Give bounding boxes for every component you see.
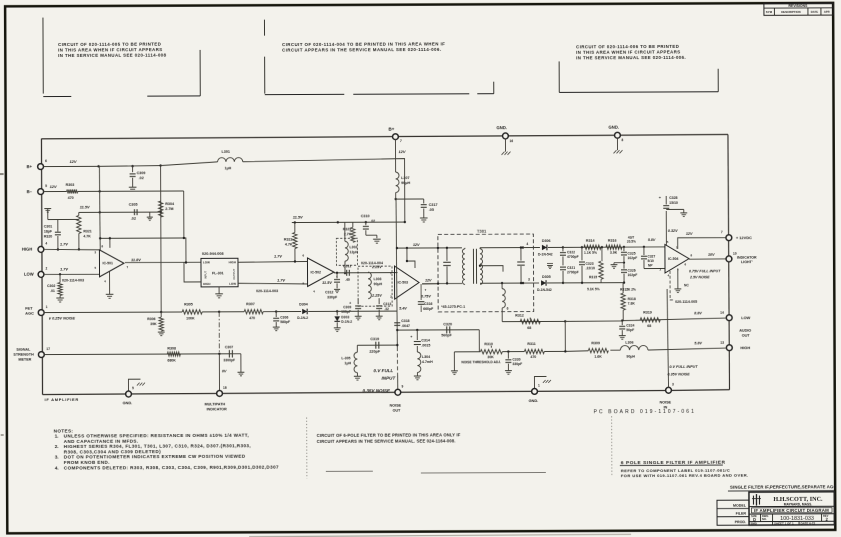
svg-text:CIRCUIT OF 6-POLE FILTER TO: CIRCUIT OF 6-POLE FILTER TO BE PRINTED I… [317, 432, 461, 438]
svg-text:12V: 12V [70, 159, 77, 164]
svg-text:NOISE THRESHOLD ADJ.: NOISE THRESHOLD ADJ. [461, 360, 501, 364]
svg-text:R323: R323 [343, 227, 351, 231]
svg-text:MODEL: MODEL [733, 504, 747, 508]
svg-text:9: 9 [401, 385, 403, 389]
svg-text:INDICATOR: INDICATOR [737, 255, 757, 259]
svg-text:50pF: 50pF [626, 328, 634, 332]
svg-text:2: 2 [45, 267, 47, 271]
svg-text:330pF: 330pF [327, 295, 337, 299]
svg-text:.40: .40 [345, 278, 350, 282]
svg-text:1: 1 [46, 305, 48, 309]
svg-text:C322: C322 [567, 250, 575, 254]
svg-text:C323: C323 [585, 262, 593, 266]
svg-text:1.6K: 1.6K [594, 355, 602, 359]
svg-text:R306: R306 [147, 317, 155, 321]
svg-text:C325: C325 [627, 252, 635, 256]
svg-text:4: 4 [45, 242, 47, 246]
svg-text:IN THE SERVICE MANUAL SEE 020-: IN THE SERVICE MANUAL SEE 020-1114-006. [576, 55, 686, 60]
svg-text:3: 3 [672, 382, 674, 386]
svg-text:IF AMPLIFIER CIRCUIT DIAGRAM: IF AMPLIFIER CIRCUIT DIAGRAM [754, 508, 829, 513]
svg-text:.02: .02 [131, 217, 136, 221]
svg-text:2.: 2. [55, 444, 59, 449]
svg-text:2700pF: 2700pF [567, 270, 579, 274]
svg-text:LOW: LOW [24, 272, 34, 277]
svg-text:IN THE SERVICE MANUAL SEE 020-: IN THE SERVICE MANUAL SEE 020-1114-008 [58, 53, 167, 58]
svg-text:330pF: 330pF [512, 362, 522, 366]
svg-text:C324: C324 [626, 324, 634, 328]
svg-text:.02: .02 [370, 219, 375, 223]
svg-text:L-305: L-305 [341, 356, 350, 360]
svg-text:3.9K: 3.9K [610, 251, 618, 255]
svg-text:16: 16 [509, 139, 513, 143]
svg-text:D-1N-542: D-1N-542 [538, 252, 553, 256]
svg-text:580pF: 580pF [280, 320, 290, 324]
svg-text:SIGNAL: SIGNAL [16, 348, 31, 352]
svg-text:0.35V NOISE: 0.35V NOISE [667, 372, 690, 376]
svg-text:1.7V: 1.7V [274, 254, 282, 259]
svg-text:.02: .02 [139, 176, 144, 180]
svg-text:FL-301: FL-301 [212, 271, 224, 275]
svg-text:.0047: .0047 [401, 324, 410, 328]
svg-text:3: 3 [528, 278, 530, 282]
svg-text:DESCRIPTION: DESCRIPTION [781, 10, 800, 14]
svg-text:1.7V: 1.7V [60, 241, 68, 246]
svg-text:5: 5 [667, 240, 669, 244]
svg-text:4: 4 [526, 242, 528, 246]
svg-text:C305: C305 [129, 203, 138, 207]
svg-text:13: 13 [720, 341, 724, 345]
svg-text:C319: C319 [370, 337, 379, 341]
svg-text:C310: C310 [361, 214, 370, 218]
svg-text:1.7V: 1.7V [60, 266, 68, 271]
svg-text:6: 6 [507, 307, 509, 311]
svg-text:C316: C316 [424, 302, 432, 306]
svg-text:FILER: FILER [736, 512, 747, 516]
svg-text:1.1K 5%: 1.1K 5% [584, 251, 597, 255]
svg-text:R321: R321 [83, 229, 91, 233]
svg-text:100μF: 100μF [341, 310, 351, 314]
svg-text:18pF: 18pF [44, 230, 52, 234]
svg-text:5.8V: 5.8V [694, 341, 702, 345]
svg-text:7: 7 [721, 230, 723, 234]
svg-text:C312: C312 [325, 290, 333, 294]
svg-text:NOISE: NOISE [660, 400, 672, 404]
svg-text:4.7K: 4.7K [83, 234, 91, 238]
svg-text:11.8V: 11.8V [131, 257, 141, 262]
svg-text:LOW: LOW [203, 260, 210, 264]
svg-text:L304: L304 [422, 355, 430, 359]
svg-text:PROD.: PROD. [735, 520, 746, 524]
svg-text:15/10: 15/10 [669, 201, 678, 205]
svg-text:HIGH: HIGH [203, 282, 210, 286]
svg-text:*45-1275-PC-1: *45-1275-PC-1 [441, 305, 465, 309]
svg-text:MULTIPATH: MULTIPATH [205, 402, 226, 406]
svg-text:SYM: SYM [766, 10, 773, 14]
svg-text:0.V FULL: 0.V FULL [373, 368, 393, 373]
svg-text:16: 16 [223, 386, 227, 390]
svg-text:30K: 30K [487, 355, 494, 359]
svg-text:IC-503: IC-503 [398, 281, 409, 285]
svg-text:HIGH: HIGH [740, 345, 750, 350]
svg-text:D-1N-2: D-1N-2 [341, 320, 352, 324]
svg-text:R303: R303 [66, 183, 75, 187]
svg-text:90μH: 90μH [401, 181, 410, 185]
svg-text:IF AMPLIFIER: IF AMPLIFIER [45, 397, 79, 402]
svg-text:D304: D304 [299, 302, 308, 306]
svg-text:R314: R314 [586, 239, 595, 243]
svg-text:GND.: GND. [529, 398, 539, 403]
svg-text:C321: C321 [567, 266, 575, 270]
svg-text:.0015: .0015 [421, 343, 430, 347]
svg-text:12V: 12V [50, 184, 57, 189]
svg-text:1.7V: 1.7V [277, 278, 285, 283]
svg-text:4700pF: 4700pF [567, 255, 579, 259]
svg-text:.05: .05 [429, 208, 434, 212]
svg-text:470: 470 [530, 355, 536, 359]
svg-text:4.7mH: 4.7mH [422, 360, 433, 364]
svg-text:OUT: OUT [393, 409, 402, 413]
svg-text:5.1K 5%: 5.1K 5% [587, 287, 600, 291]
svg-text:8: 8 [621, 138, 623, 142]
svg-text:C301: C301 [44, 225, 52, 229]
svg-text:.01: .01 [50, 289, 55, 293]
svg-text:020-1114-003: 020-1114-003 [62, 278, 84, 282]
svg-text:LIGHT': LIGHT' [741, 260, 753, 264]
svg-text:020-1114-005: 020-1114-005 [675, 300, 697, 304]
svg-text:R310: R310 [484, 342, 493, 346]
svg-text:D305: D305 [542, 275, 551, 279]
svg-text:20.5%: 20.5% [627, 240, 636, 244]
svg-text:GND.: GND. [496, 125, 507, 130]
svg-text:12μH: 12μH [349, 250, 358, 254]
svg-text:2.7K: 2.7K [344, 232, 352, 236]
svg-text:C330: C330 [512, 358, 520, 362]
svg-text:6: 6 [45, 159, 47, 163]
svg-text:7.8K: 7.8K [628, 302, 636, 306]
svg-text:C326: C326 [628, 269, 636, 273]
svg-text:C309: C309 [137, 171, 146, 175]
svg-text:B+: B+ [27, 164, 33, 169]
svg-text:METER: METER [18, 358, 31, 362]
svg-text:INDICATOR: INDICATOR [207, 407, 228, 411]
svg-text:NC: NC [684, 283, 689, 287]
svg-text:GND.: GND. [123, 400, 133, 405]
svg-text:0.32V: 0.32V [668, 229, 678, 233]
svg-text:AUDIO: AUDIO [739, 329, 751, 333]
svg-text:1μH: 1μH [344, 361, 351, 365]
svg-text:SMD: SMD [751, 521, 757, 525]
svg-text:90μH: 90μH [626, 355, 635, 359]
svg-text:1μH: 1μH [225, 166, 232, 170]
svg-text:5.4V: 5.4V [399, 307, 407, 311]
svg-text:C317: C317 [429, 203, 438, 207]
svg-text:020-1114-003: 020-1114-003 [256, 289, 278, 293]
svg-text:102pF: 102pF [627, 256, 637, 260]
svg-text:D-1N-2: D-1N-2 [297, 316, 308, 320]
svg-text:REVISIONS: REVISIONS [788, 4, 808, 8]
svg-text:R304: R304 [165, 202, 175, 206]
svg-text:68: 68 [647, 324, 651, 328]
svg-text:T301: T301 [477, 229, 487, 234]
svg-text:3.: 3. [55, 455, 59, 460]
svg-text:C307: C307 [225, 345, 233, 349]
svg-text:AGC: AGC [25, 311, 34, 316]
svg-text:C306: C306 [280, 316, 288, 320]
svg-text:12V: 12V [425, 278, 432, 282]
svg-text:R308: R308 [167, 347, 176, 351]
svg-text:CIRCUIT APPEARS IN THE SER: CIRCUIT APPEARS IN THE SERVICE MANUAL. S… [317, 438, 456, 444]
svg-text:LOW: LOW [741, 315, 750, 320]
svg-text:CIRCUIT APPEARS IN THE SERVICE: CIRCUIT APPEARS IN THE SERVICE MANUAL SE… [282, 47, 441, 53]
svg-text:C318: C318 [401, 319, 409, 323]
svg-text:470: 470 [249, 316, 255, 320]
svg-text:R315: R315 [589, 275, 597, 279]
svg-text:1.: 1. [55, 434, 59, 439]
svg-text:NO.: NO. [762, 517, 767, 521]
svg-text:2.25V: 2.25V [371, 294, 382, 298]
svg-text:L302: L302 [349, 245, 357, 249]
svg-text:C314: C314 [421, 338, 430, 342]
svg-text:102pF: 102pF [628, 273, 638, 277]
svg-text:2.25V: 2.25V [371, 265, 382, 269]
svg-text:L301: L301 [222, 150, 230, 154]
svg-text:GND.: GND. [608, 125, 619, 130]
svg-text:5: 5 [45, 184, 47, 188]
svg-text:11.5V: 11.5V [80, 204, 90, 209]
svg-text:560pF: 560pF [441, 333, 452, 337]
svg-text:C328: C328 [669, 196, 677, 200]
svg-text:C302: C302 [47, 284, 55, 288]
svg-text:0.V FULL INPUT: 0.V FULL INPUT [669, 365, 698, 369]
svg-text:B+: B+ [388, 127, 394, 132]
svg-text:0V: 0V [222, 369, 227, 373]
svg-text:470: 470 [68, 196, 74, 200]
svg-text:C309: C309 [343, 305, 351, 309]
svg-text:1K 2%: 1K 2% [626, 288, 636, 292]
svg-text:APP.: APP. [824, 10, 830, 14]
svg-text:2.7M: 2.7M [165, 207, 173, 211]
svg-text:DOT ON POTENTIOMETER INDICATES: DOT ON POTENTIOMETER INDICATES EXTREME C… [64, 454, 246, 460]
svg-text:0.35V NOISE: 0.35V NOISE [363, 388, 391, 393]
svg-text:HIGH: HIGH [229, 260, 236, 264]
svg-text:.22/10: .22/10 [585, 266, 595, 270]
svg-text:MAYNARD, MASS.: MAYNARD, MASS. [784, 502, 813, 506]
svg-text:COMPONENTS DELETED: R303, R308: COMPONENTS DELETED: R303, R308, C303, C3… [64, 464, 279, 470]
svg-text:NOISE: NOISE [390, 404, 402, 408]
svg-text:R311: R311 [527, 342, 535, 346]
svg-text:R307: R307 [246, 302, 255, 306]
svg-text:OUTPUT: OUTPUT [232, 268, 236, 279]
svg-text:14: 14 [720, 311, 724, 315]
svg-text:100K: 100K [186, 316, 195, 320]
svg-text:1: 1 [538, 383, 540, 387]
svg-text:4.7K: 4.7K [285, 243, 293, 247]
svg-text:5/10: 5/10 [647, 259, 654, 263]
svg-text:UNLESS OTHERWISE SPECIFIED:: UNLESS OTHERWISE SPECIFIED: RESISTANCE I… [64, 433, 249, 439]
svg-text:7: 7 [400, 139, 402, 143]
svg-text:L307: L307 [401, 176, 409, 180]
svg-text:R320: R320 [44, 235, 52, 239]
svg-text:11.5V: 11.5V [322, 280, 332, 285]
svg-text:5: 5 [132, 386, 134, 390]
svg-text:R309: R309 [591, 341, 600, 345]
svg-text:020-944-008: 020-944-008 [202, 252, 224, 256]
svg-text:R312: R312 [515, 314, 524, 318]
svg-text:IC-502: IC-502 [311, 270, 322, 274]
svg-text:D-1N-542: D-1N-542 [537, 288, 552, 292]
svg-text:C311: C311 [343, 264, 351, 268]
svg-text:PC BOARD 019-1107-061: PC BOARD 019-1107-061 [594, 409, 696, 415]
svg-text:LOW: LOW [229, 282, 236, 286]
svg-text:C327: C327 [647, 255, 655, 259]
svg-text:4.: 4. [55, 465, 59, 470]
svg-text:0.75V FULL INPUT: 0.75V FULL INPUT [689, 269, 721, 273]
svg-text:660pF: 660pF [423, 307, 433, 311]
svg-text:8.8V: 8.8V [694, 311, 702, 315]
svg-text:L306: L306 [625, 341, 633, 345]
svg-text:SINGLE FILTER IF,PERFECTURE,SE: SINGLE FILTER IF,PERFECTURE,SEPARATE AGC [730, 484, 838, 489]
svg-text:∨ 0.25V NOISE: ∨ 0.25V NOISE [48, 316, 75, 320]
svg-text:B−: B− [27, 189, 33, 194]
svg-text:0.75V: 0.75V [421, 294, 431, 298]
svg-text:FOR USE WITH 019-1107-061: FOR USE WITH 019-1107-061 REV.4 BOARD AN… [621, 472, 749, 478]
svg-text:680K: 680K [167, 359, 176, 363]
svg-text:STRENGTH: STRENGTH [13, 353, 34, 357]
svg-text:R316: R316 [608, 239, 617, 243]
svg-text:2.5V NOISE: 2.5V NOISE [689, 275, 710, 279]
svg-text:5.8V: 5.8V [648, 238, 656, 242]
svg-text:12V: 12V [686, 232, 693, 236]
svg-text:220pF: 220pF [369, 350, 380, 354]
svg-text:12V: 12V [399, 149, 406, 154]
svg-text:+ 12VDC: + 12VDC [736, 235, 752, 240]
svg-text:39K: 39K [150, 322, 157, 326]
svg-text:SHEET 1 OF 1: SHEET 1 OF 1 [774, 521, 794, 525]
svg-text:D306: D306 [542, 239, 551, 243]
svg-text:INPUT: INPUT [204, 270, 208, 278]
svg-text:68: 68 [527, 326, 531, 330]
svg-text:3300pF: 3300pF [223, 358, 235, 362]
svg-text:D303: D303 [341, 315, 349, 319]
svg-text:90μH: 90μH [374, 282, 383, 286]
svg-text:OUT: OUT [742, 334, 751, 338]
svg-text:DATE 6-72: DATE 6-72 [801, 521, 816, 525]
svg-text:INPUT: INPUT [381, 376, 396, 381]
svg-text:L303: L303 [374, 277, 382, 281]
svg-text:R318: R318 [628, 297, 636, 301]
svg-text:IC-504: IC-504 [668, 257, 679, 261]
svg-text:12V: 12V [413, 243, 420, 247]
svg-text:HIGH: HIGH [22, 247, 32, 252]
svg-text:10V: 10V [708, 253, 715, 257]
svg-text:C313: C313 [383, 302, 391, 306]
svg-text:C320: C320 [443, 322, 452, 326]
svg-text:DATE: DATE [811, 10, 819, 14]
svg-text:11.5V: 11.5V [293, 214, 303, 219]
svg-text:R319: R319 [643, 311, 652, 315]
svg-text:IC-501: IC-501 [102, 261, 113, 265]
svg-text:R322: R322 [284, 238, 293, 242]
svg-text:17: 17 [46, 347, 50, 351]
svg-text:R305: R305 [184, 302, 193, 306]
svg-text:.32: .32 [384, 307, 389, 311]
